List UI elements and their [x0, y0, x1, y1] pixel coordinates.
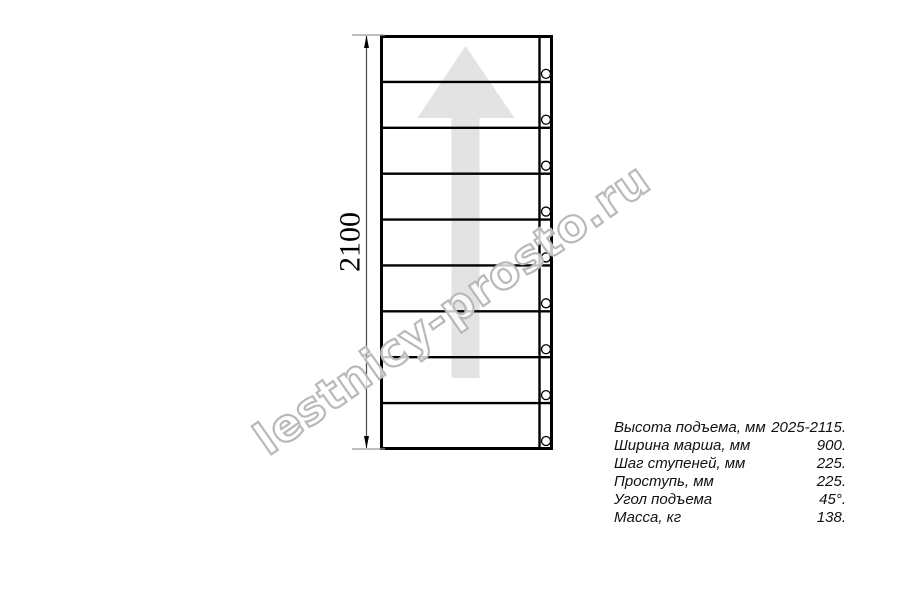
spec-label: Угол подъема	[614, 491, 712, 509]
bolt-hole	[542, 437, 551, 446]
spec-value: 225.	[817, 473, 846, 491]
specs-table: Высота подъема, мм 2025-2115. Ширина мар…	[614, 419, 846, 527]
spec-label: Проступь, мм	[614, 473, 714, 491]
spec-label: Высота подъема, мм	[614, 419, 766, 437]
spec-row-tread: Проступь, мм 225.	[614, 473, 846, 491]
bolt-hole	[542, 161, 551, 170]
spec-label: Ширина марша, мм	[614, 437, 750, 455]
spec-row-step: Шаг ступеней, мм 225.	[614, 455, 846, 473]
drawing-canvas: 2100 lestnicy-prosto.ru Высота подъема, …	[0, 0, 900, 600]
bolt-hole	[542, 391, 551, 400]
dimension-label: 2100	[334, 212, 367, 272]
bolt-hole	[542, 345, 551, 354]
spec-row-height: Высота подъема, мм 2025-2115.	[614, 419, 846, 437]
spec-value: 225.	[817, 455, 846, 473]
spec-row-width: Ширина марша, мм 900.	[614, 437, 846, 455]
bolt-hole	[542, 69, 551, 78]
spec-value: 138.	[817, 509, 846, 527]
bolt-hole	[542, 115, 551, 124]
spec-row-mass: Масса, кг 138.	[614, 509, 846, 527]
spec-value: 45°.	[819, 491, 846, 509]
dimension-arrow-top	[364, 36, 369, 49]
dimension-arrow-bottom	[364, 436, 369, 449]
spec-label: Шаг ступеней, мм	[614, 455, 745, 473]
bolt-hole	[542, 299, 551, 308]
spec-value: 2025-2115.	[771, 419, 846, 437]
spec-label: Масса, кг	[614, 509, 681, 527]
spec-row-angle: Угол подъема 45°.	[614, 491, 846, 509]
spec-value: 900.	[817, 437, 846, 455]
